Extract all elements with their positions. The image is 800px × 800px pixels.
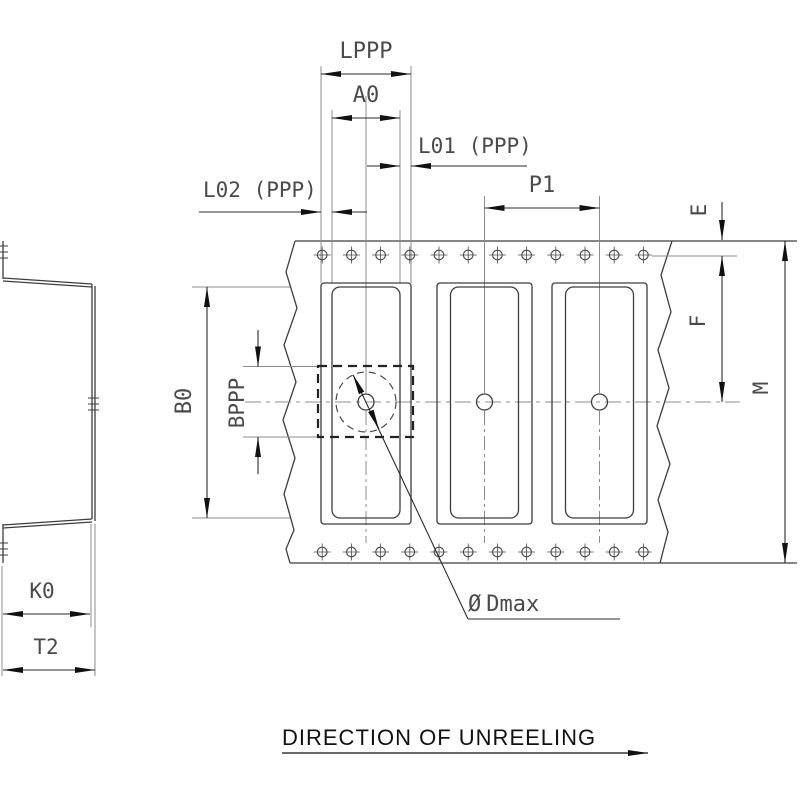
label-f: F <box>686 315 710 328</box>
label-l01: L01 (PPP) <box>418 134 532 158</box>
label-bppp: BPPP <box>225 378 249 429</box>
label-m: M <box>749 382 773 395</box>
label-lppp: LPPP <box>340 39 393 64</box>
direction-of-unreeling-label: DIRECTION OF UNREELING <box>282 725 596 750</box>
label-dmax: ØDmax <box>468 592 539 617</box>
drawing-canvas: LPPP A0 L01 (PPP) L02 (PPP) P1 E F M B0 … <box>0 0 800 800</box>
extension-lines <box>2 66 740 676</box>
tape-reel-drawing: LPPP A0 L01 (PPP) L02 (PPP) P1 E F M B0 … <box>0 0 800 800</box>
label-l02: L02 (PPP) <box>203 178 317 202</box>
dimension-lines <box>3 74 785 670</box>
label-a0: A0 <box>353 83 380 108</box>
label-t2: T2 <box>33 635 58 659</box>
tape-side-view <box>0 241 99 563</box>
label-e: E <box>687 204 711 217</box>
label-p1: P1 <box>529 173 556 198</box>
label-k0: K0 <box>29 579 54 603</box>
dmax-diameter-arrow <box>374 418 379 429</box>
label-b0: B0 <box>172 388 197 415</box>
sprocket-holes <box>314 247 652 561</box>
